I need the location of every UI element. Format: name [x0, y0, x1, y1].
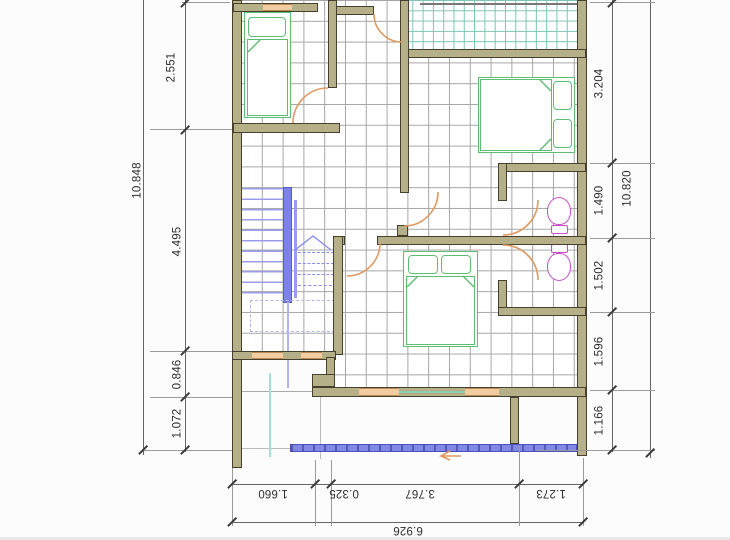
extension-line [232, 468, 233, 526]
extension-line [150, 129, 232, 130]
door-arc-icon [347, 243, 380, 276]
door-arc-icon [404, 192, 438, 226]
dimension-label-left-3: 1.072 [172, 402, 185, 446]
dimension-label-left-0: 2.551 [166, 46, 179, 90]
extension-line [590, 238, 655, 239]
dimension-label-right-1: 1.490 [594, 179, 607, 223]
mattress-fold [540, 139, 551, 150]
dimension-label-right-3: 1.596 [594, 330, 607, 374]
mattress-fold [248, 40, 260, 52]
entry-arrow-icon [441, 451, 461, 460]
door-arc-icon [293, 88, 328, 123]
extension-line [519, 446, 520, 526]
dimension-label-bottom-2: 3.767 [398, 486, 442, 499]
dimension-label-left-overall: 10.848 [132, 156, 145, 206]
extension-line [590, 390, 655, 391]
extension-line [537, 450, 655, 451]
extension-line [150, 397, 232, 398]
dimension-label-right-4: 1.166 [594, 399, 607, 443]
dimension-line [143, 0, 144, 455]
dimension-label-right-overall: 10.820 [622, 164, 635, 214]
dimension-label-bottom-3: 1.273 [529, 486, 573, 499]
door-arc-icon [503, 245, 538, 280]
extension-line [583, 458, 584, 526]
dimension-label-bottom-overall: 6.926 [386, 523, 430, 536]
extension-line [315, 460, 316, 526]
mattress-fold [407, 276, 418, 287]
mattress-fold [463, 276, 474, 287]
extension-line [182, 2, 230, 3]
floor-plan-canvas: 2.551 4.495 0.846 1.072 10.848 3.204 1.4… [0, 0, 730, 540]
dimension-line [612, 0, 613, 452]
dimension-label-right-2: 1.502 [594, 254, 607, 298]
extension-line [150, 351, 232, 352]
dimension-line [232, 484, 584, 485]
extension-line [590, 312, 655, 313]
dimension-label-bottom-1: 0.325 [322, 486, 366, 499]
extension-line [590, 2, 655, 3]
dimension-label-left-2: 0.846 [172, 353, 185, 397]
door-arc-icon [374, 14, 402, 42]
dimension-line [185, 0, 186, 452]
plan-overlay [0, 0, 730, 540]
dimension-label-right-0: 3.204 [594, 62, 607, 106]
door-arc-icon [503, 200, 538, 235]
mattress-fold [540, 80, 551, 91]
stair-direction-icon [295, 236, 331, 250]
dimension-label-left-1: 4.495 [172, 220, 185, 264]
dimension-label-bottom-0: 1.660 [251, 486, 295, 499]
extension-line [143, 450, 232, 451]
